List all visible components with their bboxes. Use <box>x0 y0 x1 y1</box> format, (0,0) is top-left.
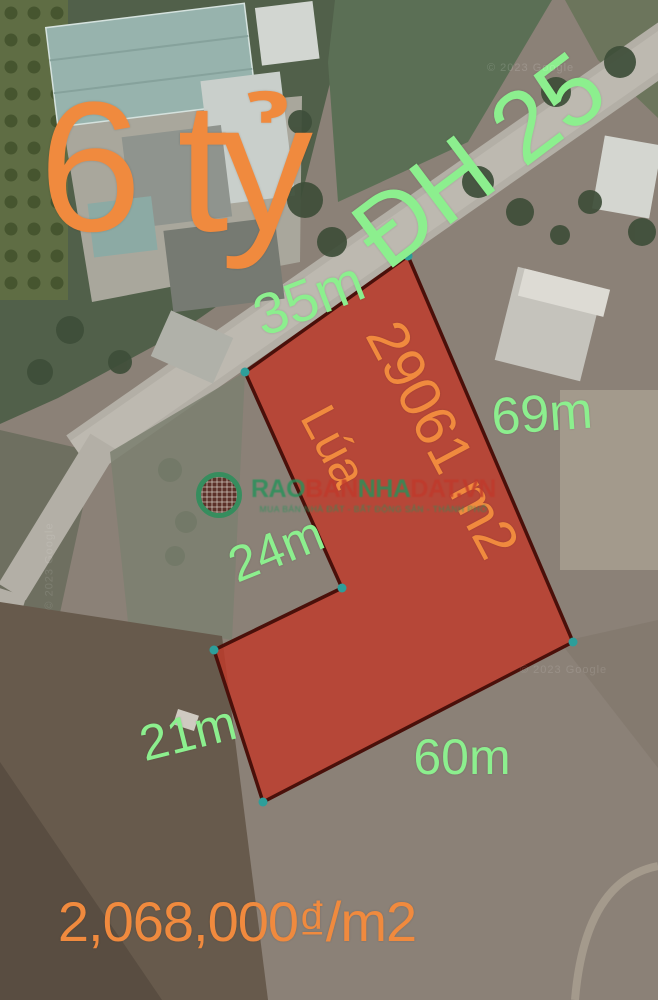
vertex-dot <box>404 252 413 261</box>
brand-text: RAOBANNHADAT.VN MUA BÁN NHÀ ĐẤT - BẤT ĐỘ… <box>251 477 496 514</box>
brand-logo-icon <box>196 472 242 518</box>
vertex-dot <box>338 584 347 593</box>
brand-watermark: RAOBANNHADAT.VN MUA BÁN NHÀ ĐẤT - BẤT ĐỘ… <box>196 472 496 518</box>
brand-segment: DAT.VN <box>410 475 495 503</box>
brand-segment: RAO <box>251 475 305 503</box>
land-plot-polygon <box>214 256 573 802</box>
brand-segment: NHA <box>358 475 411 503</box>
brand-name: RAOBANNHADAT.VN <box>251 477 496 502</box>
vertex-dot <box>210 646 219 655</box>
brand-tagline: MUA BÁN NHÀ ĐẤT - BẤT ĐỘNG SẢN - THÀNH P… <box>259 504 487 514</box>
vertex-dot <box>569 638 578 647</box>
brand-segment: BAN <box>305 475 358 503</box>
vertex-dot <box>259 798 268 807</box>
vertex-dot <box>241 368 250 377</box>
land-listing-image: 6 tỷĐH 2535m29061 m2Lúa69m24m21m60m2,068… <box>0 0 658 1000</box>
